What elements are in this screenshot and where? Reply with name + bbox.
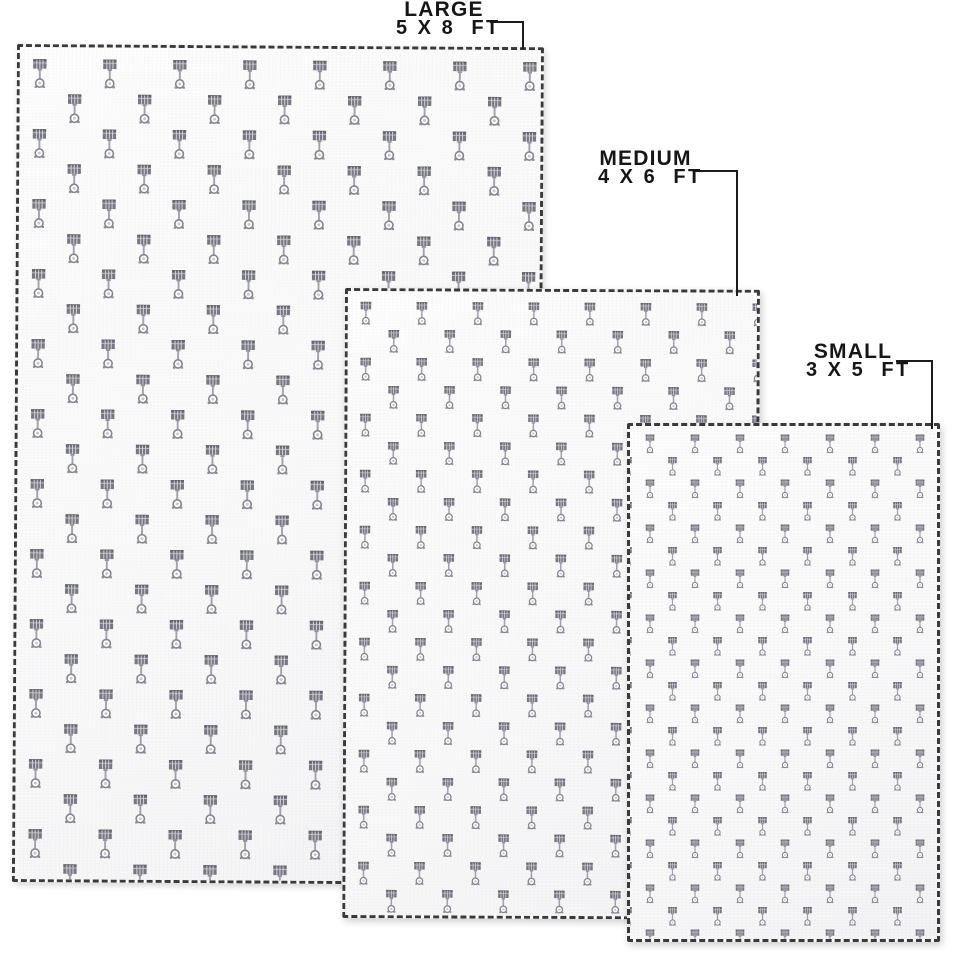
- size-dims-large: 5 X 8 FT: [396, 19, 492, 38]
- size-dims-medium: 4 X 6 FT: [598, 168, 693, 187]
- size-label-small: SMALL 3 X 5 FT: [806, 343, 900, 380]
- callout-line-small-vertical: [931, 360, 933, 429]
- callout-line-medium-vertical: [736, 170, 738, 296]
- product-size-comparison: LARGE 5 X 8 FT MEDIUM 4 X 6 FT SMALL 3 X…: [0, 0, 960, 960]
- callout-line-large-vertical: [522, 21, 524, 49]
- size-label-medium: MEDIUM 4 X 6 FT: [598, 150, 693, 187]
- rug-small: [627, 423, 940, 942]
- piston-pattern: [630, 426, 937, 939]
- size-label-large: LARGE 5 X 8 FT: [396, 1, 492, 38]
- size-dims-small: 3 X 5 FT: [806, 361, 900, 380]
